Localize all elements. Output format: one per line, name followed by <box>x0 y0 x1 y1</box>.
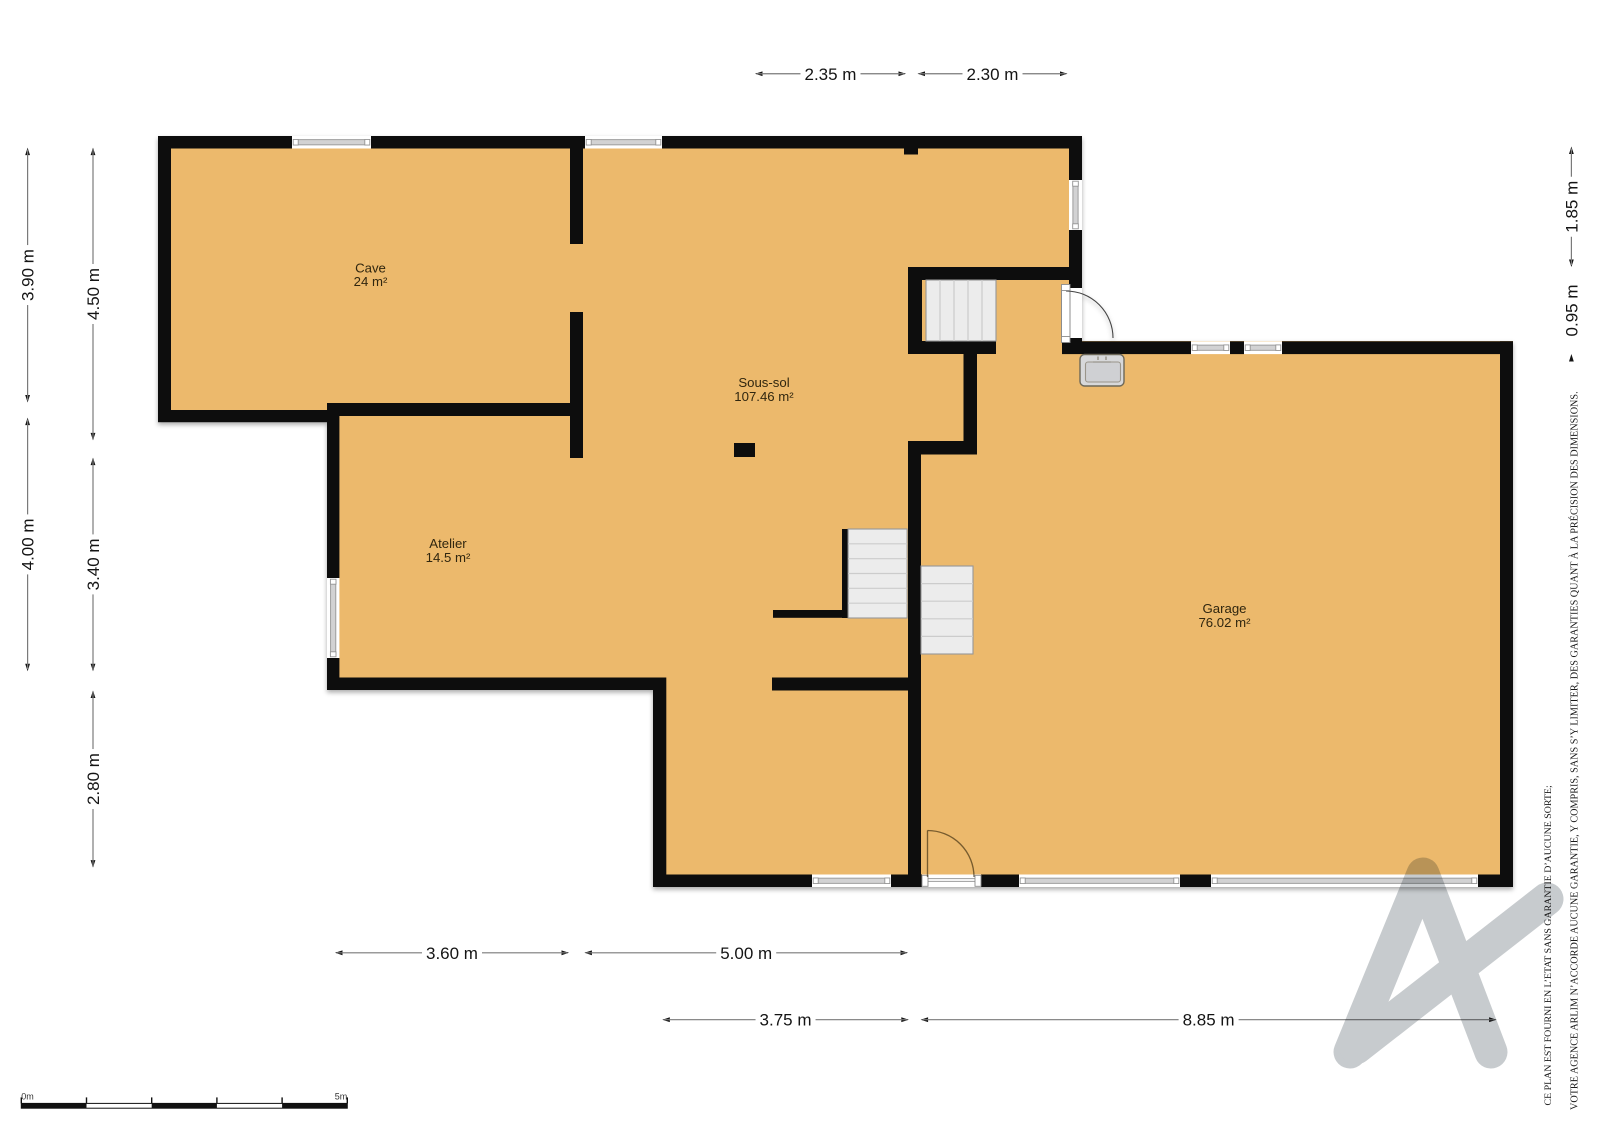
svg-text:2.30 m: 2.30 m <box>967 65 1019 84</box>
svg-text:Garage: Garage <box>1203 601 1247 616</box>
svg-text:8.85 m: 8.85 m <box>1183 1011 1235 1030</box>
svg-text:0m: 0m <box>21 1091 34 1101</box>
svg-text:Sous-sol: Sous-sol <box>738 375 789 390</box>
svg-text:14.5 m²: 14.5 m² <box>426 550 471 565</box>
svg-text:2.35 m: 2.35 m <box>805 65 857 84</box>
svg-text:3.60 m: 3.60 m <box>426 944 478 963</box>
svg-text:CE PLAN EST FOURNI EN L’ETAT S: CE PLAN EST FOURNI EN L’ETAT SANS GARANT… <box>1543 785 1554 1105</box>
svg-text:5.00 m: 5.00 m <box>720 944 772 963</box>
svg-text:1.85 m: 1.85 m <box>1562 181 1581 233</box>
svg-text:4.00 m: 4.00 m <box>19 518 38 570</box>
svg-text:107.46 m²: 107.46 m² <box>734 389 794 404</box>
svg-text:24 m²: 24 m² <box>354 274 388 289</box>
svg-text:0.95 m: 0.95 m <box>1562 285 1581 337</box>
svg-text:76.02 m²: 76.02 m² <box>1198 615 1251 630</box>
svg-text:4.50 m: 4.50 m <box>84 268 103 320</box>
svg-text:Atelier: Atelier <box>429 536 467 551</box>
svg-text:VOTRE AGENCE ARLIM N’ACCORDE A: VOTRE AGENCE ARLIM N’ACCORDE AUCUNE GARA… <box>1569 391 1581 1110</box>
svg-text:2.80 m: 2.80 m <box>84 753 103 805</box>
svg-text:3.75 m: 3.75 m <box>760 1011 812 1030</box>
svg-text:3.90 m: 3.90 m <box>19 249 38 301</box>
svg-text:Cave: Cave <box>355 260 386 275</box>
svg-text:3.40 m: 3.40 m <box>84 538 103 590</box>
svg-text:5m: 5m <box>335 1091 348 1101</box>
